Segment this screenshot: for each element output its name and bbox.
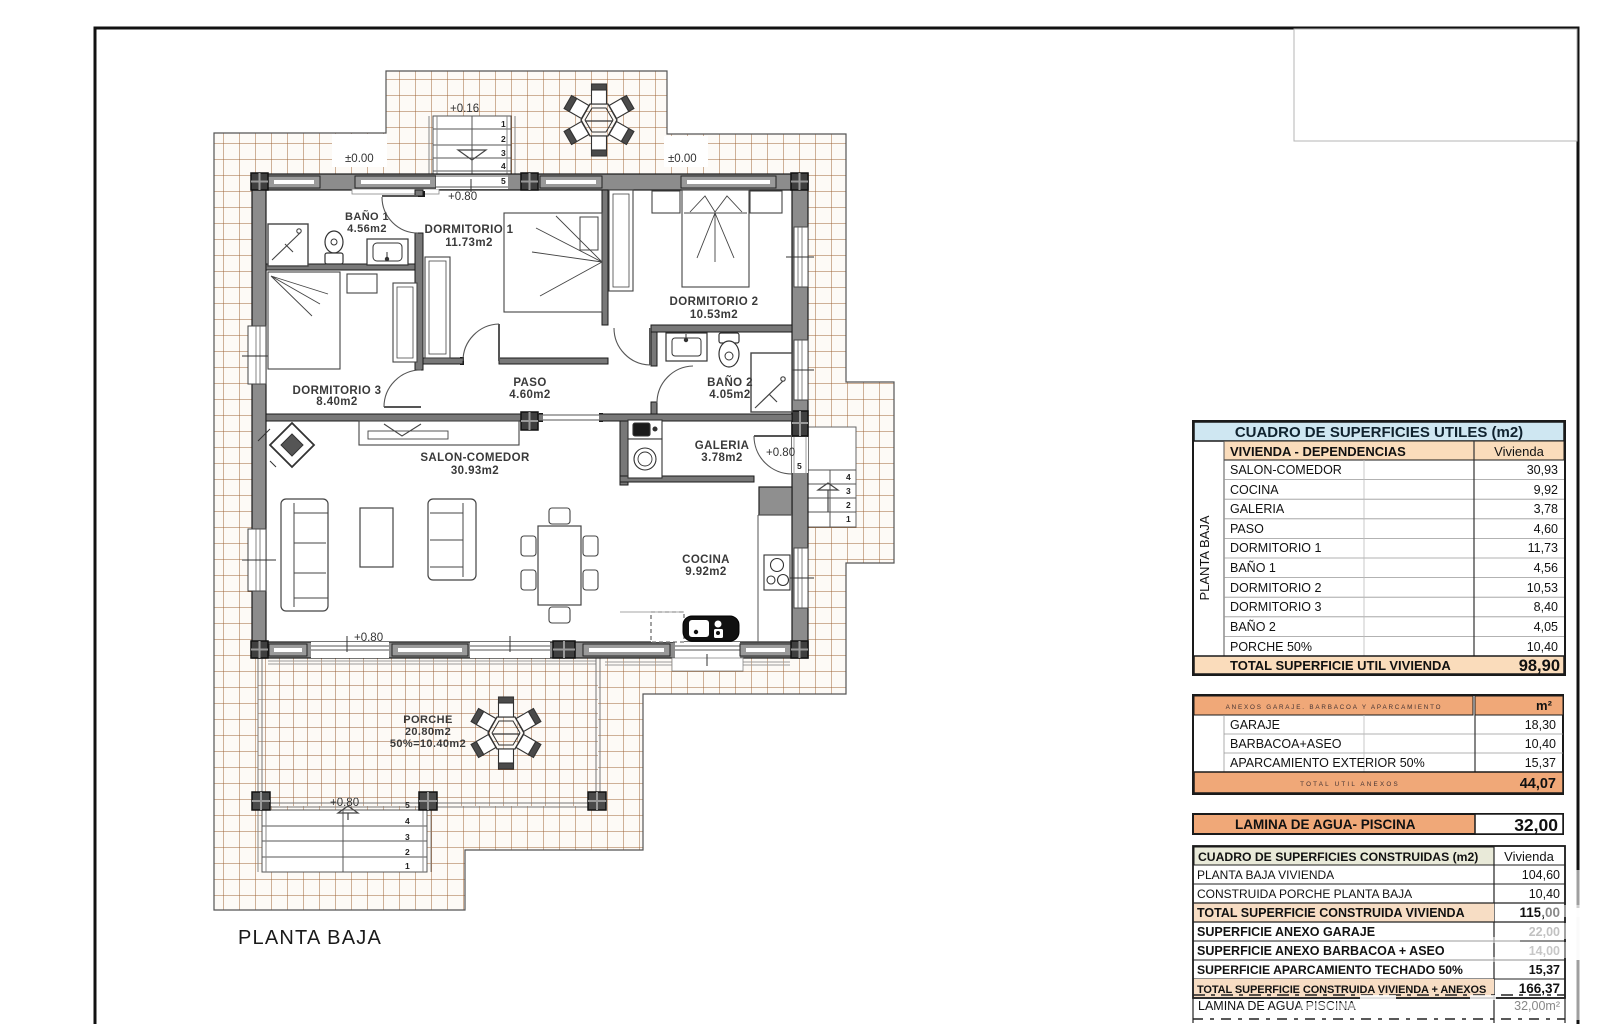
svg-text:APARCAMIENTO EXTERIOR 50%: APARCAMIENTO EXTERIOR 50% [1230,756,1425,770]
svg-text:DORMITORIO 3: DORMITORIO 3 [1230,600,1321,614]
svg-text:m²: m² [1536,698,1553,713]
svg-text:4: 4 [501,161,506,171]
svg-text:1: 1 [501,119,506,129]
svg-text:+0.80: +0.80 [330,797,359,809]
svg-text:2: 2 [846,500,851,510]
svg-text:4,60: 4,60 [1534,522,1558,536]
svg-text:8,40: 8,40 [1534,600,1558,614]
svg-text:LAMINA DE AGUA- PISCINA: LAMINA DE AGUA- PISCINA [1235,817,1416,832]
svg-text:104,60: 104,60 [1522,868,1560,882]
svg-text:DORMITORIO 2: DORMITORIO 2 [1230,581,1321,595]
svg-text:20.80m2: 20.80m2 [405,726,451,738]
svg-text:4.56m2: 4.56m2 [347,223,387,235]
svg-text:18,30: 18,30 [1525,718,1556,732]
svg-text:3: 3 [405,832,410,842]
svg-text:5: 5 [405,800,410,810]
svg-text:9.92m2: 9.92m2 [685,566,726,578]
svg-text:Vivienda: Vivienda [1504,849,1554,864]
svg-text:PASO: PASO [513,377,546,389]
svg-text:4: 4 [846,472,851,482]
svg-text:10,40: 10,40 [1529,887,1560,901]
svg-text:3.78m2: 3.78m2 [701,452,742,464]
svg-text:COCINA: COCINA [682,554,730,566]
svg-text:2: 2 [405,847,410,857]
svg-text:3: 3 [846,486,851,496]
svg-text:VIVIENDA - DEPENDENCIAS: VIVIENDA - DEPENDENCIAS [1230,444,1406,459]
svg-text:30,93: 30,93 [1527,463,1558,477]
svg-text:BAÑO 1: BAÑO 1 [1230,561,1276,575]
svg-text:PLANTA BAJA: PLANTA BAJA [1197,515,1212,600]
svg-text:CONSTRUIDA PORCHE PLANTA BAJA: CONSTRUIDA PORCHE PLANTA BAJA [1197,887,1412,901]
svg-text:TOTAL UTIL ANEXOS: TOTAL UTIL ANEXOS [1300,781,1400,788]
svg-text:PASO: PASO [1230,522,1264,536]
svg-text:10,40: 10,40 [1527,640,1558,654]
svg-text:GARAJE: GARAJE [1230,718,1280,732]
svg-text:+0.80: +0.80 [448,191,477,203]
svg-text:166,37: 166,37 [1519,981,1560,996]
svg-text:4,05: 4,05 [1534,620,1558,634]
svg-text:SUPERFICIE ANEXO BARBACOA + AS: SUPERFICIE ANEXO BARBACOA + ASEO [1197,944,1445,958]
svg-text:PLANTA BAJA VIVIENDA: PLANTA BAJA VIVIENDA [1197,868,1334,882]
svg-text:GALERIA: GALERIA [1230,502,1285,516]
svg-text:3,78: 3,78 [1534,502,1558,516]
svg-text:PORCHE 50%: PORCHE 50% [1230,640,1312,654]
svg-text:15,37: 15,37 [1529,963,1560,977]
svg-text:3: 3 [501,148,506,158]
svg-text:DORMITORIO 2: DORMITORIO 2 [670,296,759,308]
svg-text:32,00m²: 32,00m² [1514,999,1560,1013]
svg-text:BAÑO 2: BAÑO 2 [707,376,753,389]
svg-text:32,00: 32,00 [1514,815,1558,835]
svg-text:44,07: 44,07 [1520,776,1556,792]
svg-text:50%=10.40m2: 50%=10.40m2 [390,738,466,750]
svg-text:5: 5 [797,461,802,471]
svg-text:1: 1 [846,514,851,524]
svg-text:4: 4 [405,816,410,826]
svg-text:9,92: 9,92 [1534,483,1558,497]
svg-text:+0.16: +0.16 [450,103,479,115]
svg-text:ANEXOS GARAJE. BARBACOA Y APAR: ANEXOS GARAJE. BARBACOA Y APARCAMIENTO [1226,704,1443,711]
svg-text:CUADRO DE SUPERFICIES UTILES (: CUADRO DE SUPERFICIES UTILES (m2) [1235,424,1523,441]
svg-text:COCINA: COCINA [1230,483,1279,497]
svg-text:PLANTA BAJA: PLANTA BAJA [238,927,382,949]
svg-text:±0.00: ±0.00 [345,153,374,165]
svg-text:BAÑO 1: BAÑO 1 [345,210,389,223]
svg-text:SUPERFICIE APARCAMIENTO TECHAD: SUPERFICIE APARCAMIENTO TECHADO 50% [1197,963,1463,977]
svg-text:10,40: 10,40 [1525,737,1556,751]
svg-text:SALON-COMEDOR: SALON-COMEDOR [420,452,530,464]
svg-text:SALON-COMEDOR: SALON-COMEDOR [1230,463,1342,477]
svg-text:BARBACOA+ASEO: BARBACOA+ASEO [1230,737,1342,751]
svg-text:98,90: 98,90 [1519,657,1560,675]
svg-text:PORCHE: PORCHE [403,714,452,726]
svg-text:TOTAL SUPERFICIE CONSTRUIDA VI: TOTAL SUPERFICIE CONSTRUIDA VIVIENDA [1197,906,1465,920]
svg-text:DORMITORIO 1: DORMITORIO 1 [1230,541,1321,555]
svg-text:2: 2 [501,134,506,144]
svg-text:10.53m2: 10.53m2 [690,309,738,321]
svg-text:+0.80: +0.80 [354,632,383,644]
svg-text:8.40m2: 8.40m2 [316,396,357,408]
svg-text:SUPERFICIE ANEXO GARAJE: SUPERFICIE ANEXO GARAJE [1197,925,1375,939]
svg-text:TOTAL SUPERFICIE UTIL VIVIENDA: TOTAL SUPERFICIE UTIL VIVIENDA [1230,658,1451,673]
svg-text:5: 5 [501,176,506,186]
svg-text:11.73m2: 11.73m2 [445,237,493,249]
svg-text:1: 1 [405,861,410,871]
svg-text:4,56: 4,56 [1534,561,1558,575]
svg-text:TOTAL SUPERFICIE CONSTRUIDA VI: TOTAL SUPERFICIE CONSTRUIDA VIVIENDA + A… [1197,984,1486,996]
svg-text:4.05m2: 4.05m2 [709,389,750,401]
svg-text:30.93m2: 30.93m2 [451,465,499,477]
svg-text:GALERIA: GALERIA [695,440,750,452]
svg-text:+0.80: +0.80 [766,447,795,459]
svg-text:DORMITORIO 1: DORMITORIO 1 [425,224,514,236]
svg-text:15,37: 15,37 [1525,756,1556,770]
svg-text:±0.00: ±0.00 [668,153,697,165]
svg-text:CUADRO DE SUPERFICIES CONSTRUI: CUADRO DE SUPERFICIES CONSTRUIDAS (m2) [1198,850,1478,864]
svg-text:BAÑO 2: BAÑO 2 [1230,620,1276,634]
svg-text:11,73: 11,73 [1528,541,1558,555]
svg-text:4.60m2: 4.60m2 [509,389,550,401]
svg-text:Vivienda: Vivienda [1494,444,1544,459]
svg-text:10,53: 10,53 [1527,581,1558,595]
